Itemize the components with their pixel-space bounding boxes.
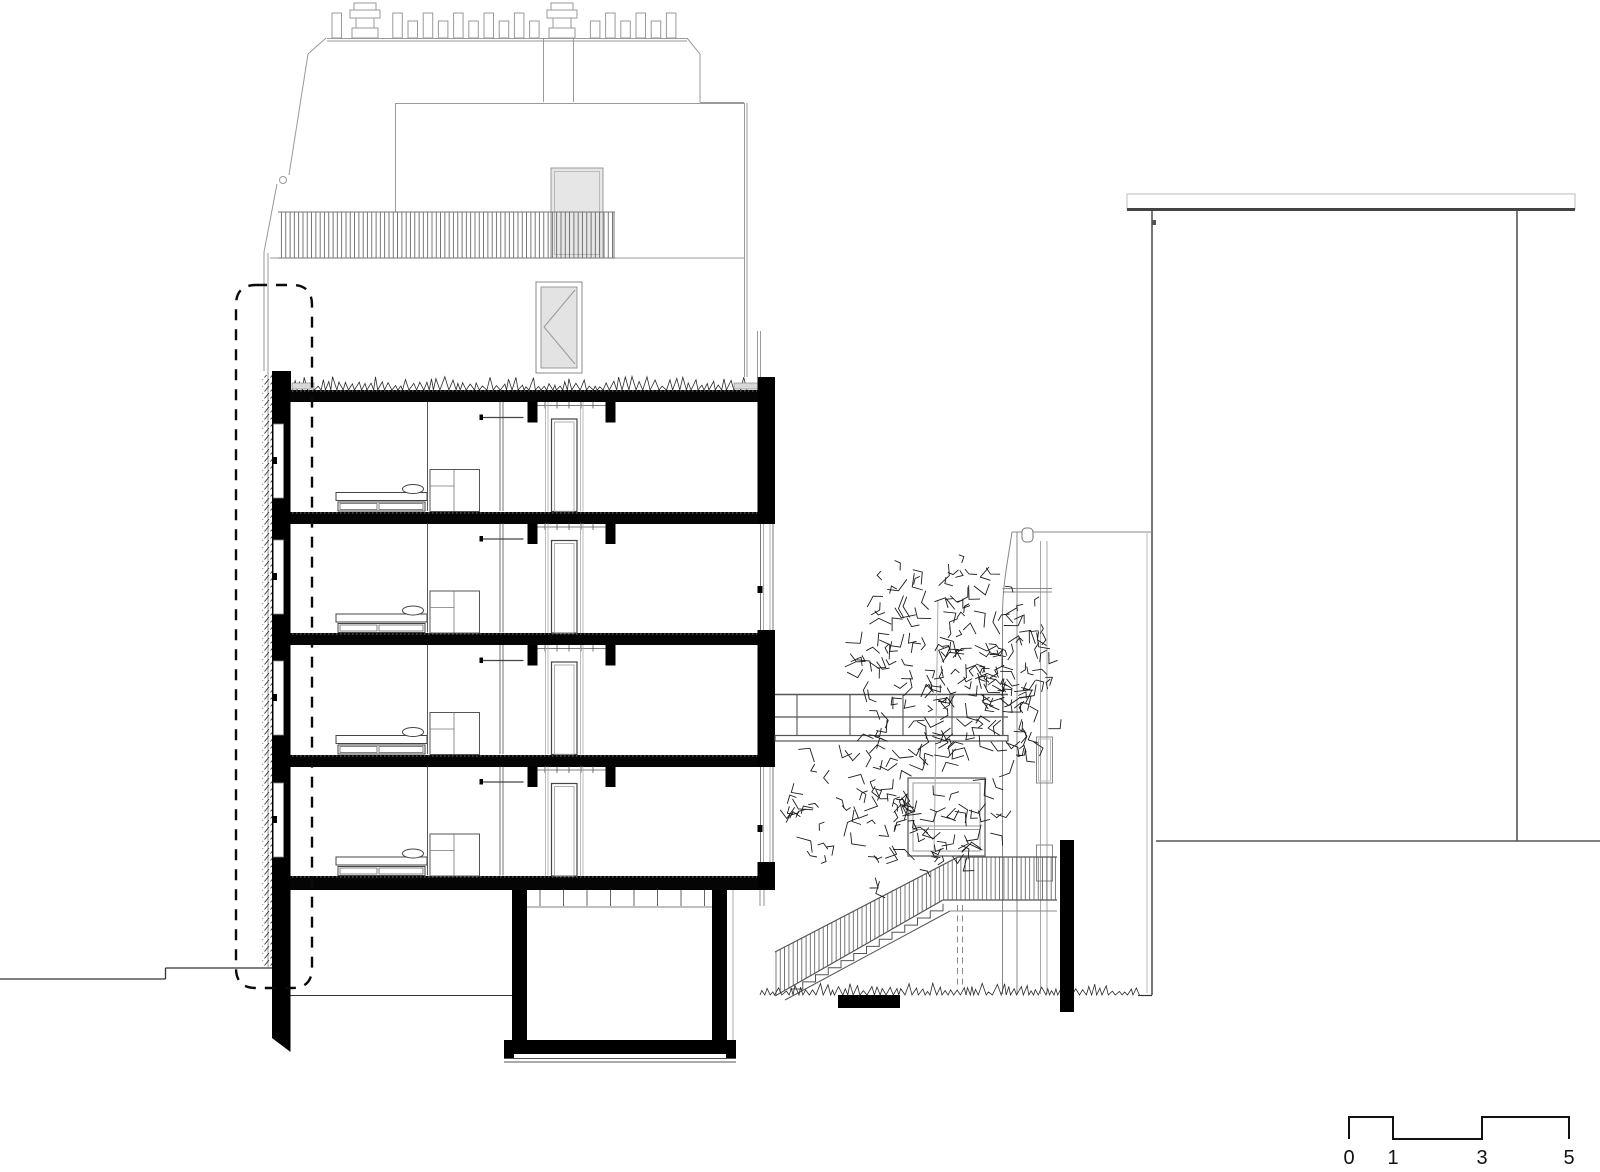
floor-slabs xyxy=(272,390,775,890)
ground-threshold xyxy=(838,995,900,1008)
wall-edge-curved xyxy=(1003,532,1013,994)
existing-wall-hatch xyxy=(263,375,273,967)
mansard-roofline-lower xyxy=(264,184,277,371)
roof-cap-right xyxy=(734,383,759,389)
floor-slab xyxy=(272,755,775,767)
garden-grass xyxy=(760,983,1139,995)
scale-bar: 0 1 3 5 xyxy=(1343,1117,1574,1169)
left-wall xyxy=(263,371,291,1052)
scale-label-5: 5 xyxy=(1563,1147,1574,1169)
basement-ceiling-ticks xyxy=(540,890,705,906)
wall-cap-tab xyxy=(1022,528,1033,542)
scale-label-0: 0 xyxy=(1343,1147,1354,1169)
wall-notch xyxy=(1152,220,1156,225)
gutter xyxy=(280,177,287,184)
scale-label-1: 1 xyxy=(1387,1147,1398,1169)
background-building-elevation xyxy=(264,3,761,967)
roof-terrace-railing xyxy=(278,212,615,258)
external-stair xyxy=(775,857,1057,1000)
section-building xyxy=(263,371,776,1062)
garden-post xyxy=(1060,840,1074,1012)
right-wall xyxy=(758,377,776,906)
roof-dormer-door xyxy=(536,282,582,373)
roof-slab xyxy=(272,390,775,402)
wall-foundation-taper xyxy=(272,1038,291,1052)
floor-unit-4 xyxy=(336,402,616,512)
ground-slab xyxy=(272,876,775,890)
hidden-stair-dashes xyxy=(958,905,963,985)
roof-cap-left xyxy=(292,383,314,389)
right-building-elevation xyxy=(1127,194,1600,995)
roofline-right xyxy=(687,38,700,102)
floor-slab xyxy=(272,512,775,524)
tree-foliage xyxy=(780,555,1061,898)
garden-wall xyxy=(1003,528,1153,994)
floor-slab xyxy=(272,633,775,645)
scale-label-3: 3 xyxy=(1476,1147,1487,1169)
chimney-cap xyxy=(350,3,380,38)
floor-unit-2 xyxy=(336,645,616,755)
chimney-cap xyxy=(547,3,577,38)
chimney-pots xyxy=(332,13,676,38)
green-roof-grass xyxy=(292,376,747,390)
tree xyxy=(780,555,1061,898)
scale-bar-line xyxy=(1349,1117,1569,1139)
basement xyxy=(504,890,736,1062)
right-wall-window-garden xyxy=(758,767,776,862)
parapet-cap xyxy=(1127,194,1575,209)
right-wall-window-floor2 xyxy=(758,524,776,630)
floor-unit-1 xyxy=(336,767,616,877)
floor-unit-3 xyxy=(336,524,616,634)
mansard-roofline xyxy=(289,38,326,175)
architectural-section-sheet: 0 1 3 5 xyxy=(0,0,1600,1172)
roof-parapet-left xyxy=(272,371,291,391)
